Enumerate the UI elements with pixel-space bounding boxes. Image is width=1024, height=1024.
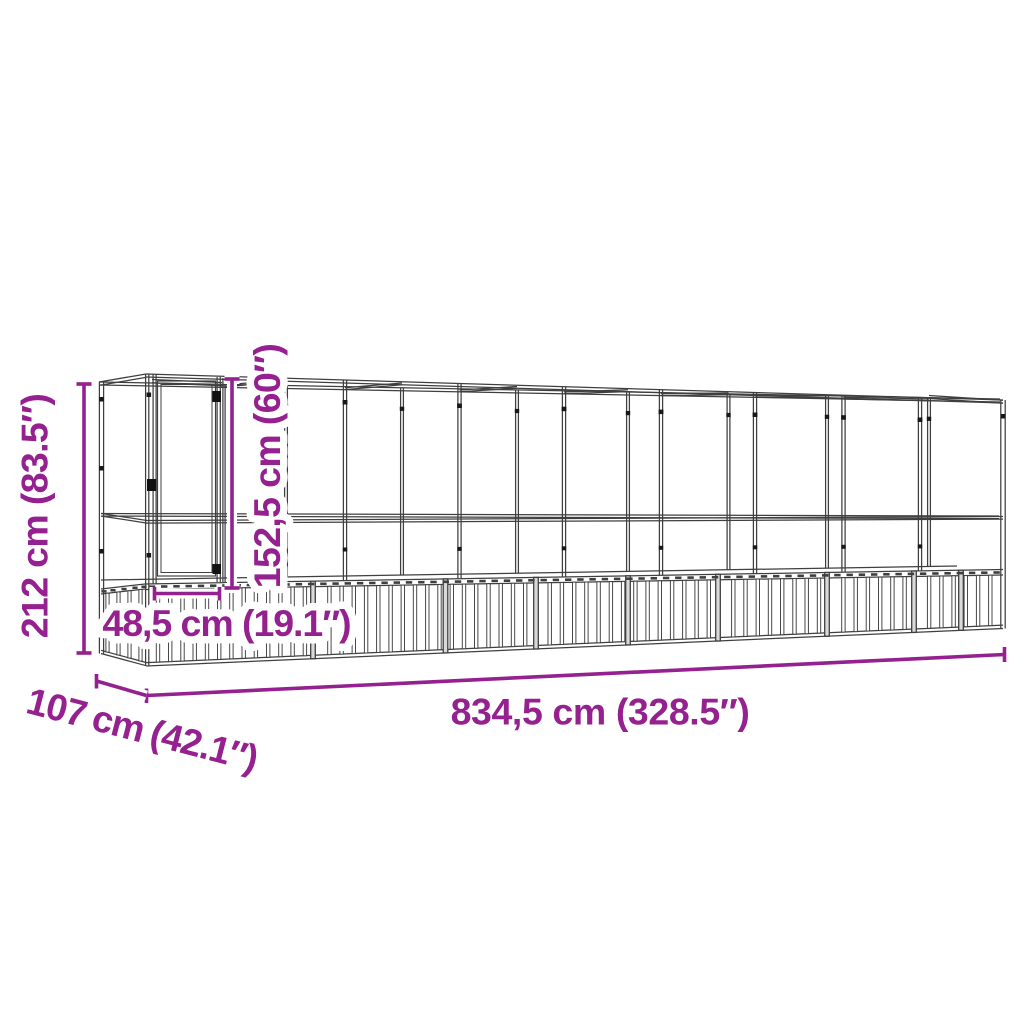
svg-text:834,5 cm (328.5″): 834,5 cm (328.5″) — [451, 691, 750, 733]
svg-text:152,5 cm (60″): 152,5 cm (60″) — [246, 344, 288, 588]
svg-text:48,5 cm (19.1″): 48,5 cm (19.1″) — [102, 602, 350, 644]
svg-text:212 cm (83.5″): 212 cm (83.5″) — [14, 394, 56, 638]
